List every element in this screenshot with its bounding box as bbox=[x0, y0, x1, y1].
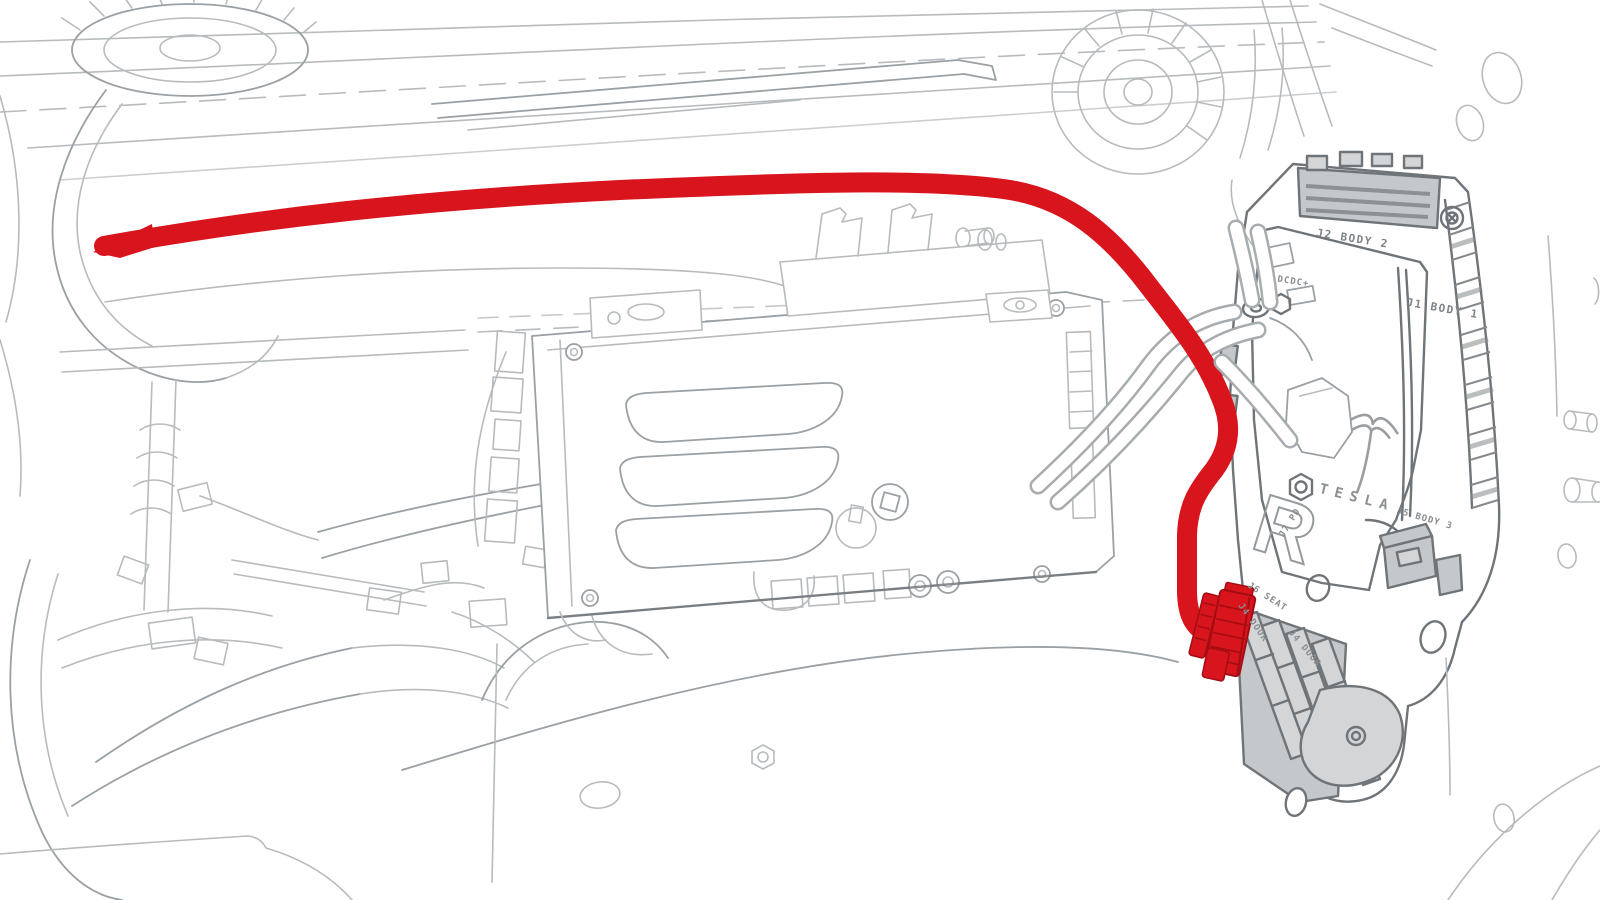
label-dcdc: DCDC+ bbox=[1277, 275, 1310, 290]
label-j1-body-1: J1 BODY 1 bbox=[1405, 296, 1479, 321]
j2-connector bbox=[1298, 152, 1440, 228]
j5-connector bbox=[1380, 524, 1462, 595]
pcs-unit bbox=[474, 204, 1114, 641]
label-tesla-wordmark: TESLA bbox=[1318, 481, 1397, 515]
label-j2-body-2: J2 BODY 2 bbox=[1315, 226, 1389, 250]
wiper-pivot-cap bbox=[62, 0, 316, 96]
torx-screw bbox=[1441, 207, 1463, 229]
blower-grille bbox=[1052, 9, 1224, 174]
service-manual-illustration: J2 BODY 2 DCDC+ J1 BODY 1 R J7 PD TESLA … bbox=[0, 0, 1600, 900]
heatsink-fins bbox=[1446, 202, 1498, 508]
illustration-canvas: J2 BODY 2 DCDC+ J1 BODY 1 R J7 PD TESLA … bbox=[0, 0, 1600, 900]
cowl-linework bbox=[0, 0, 1436, 332]
